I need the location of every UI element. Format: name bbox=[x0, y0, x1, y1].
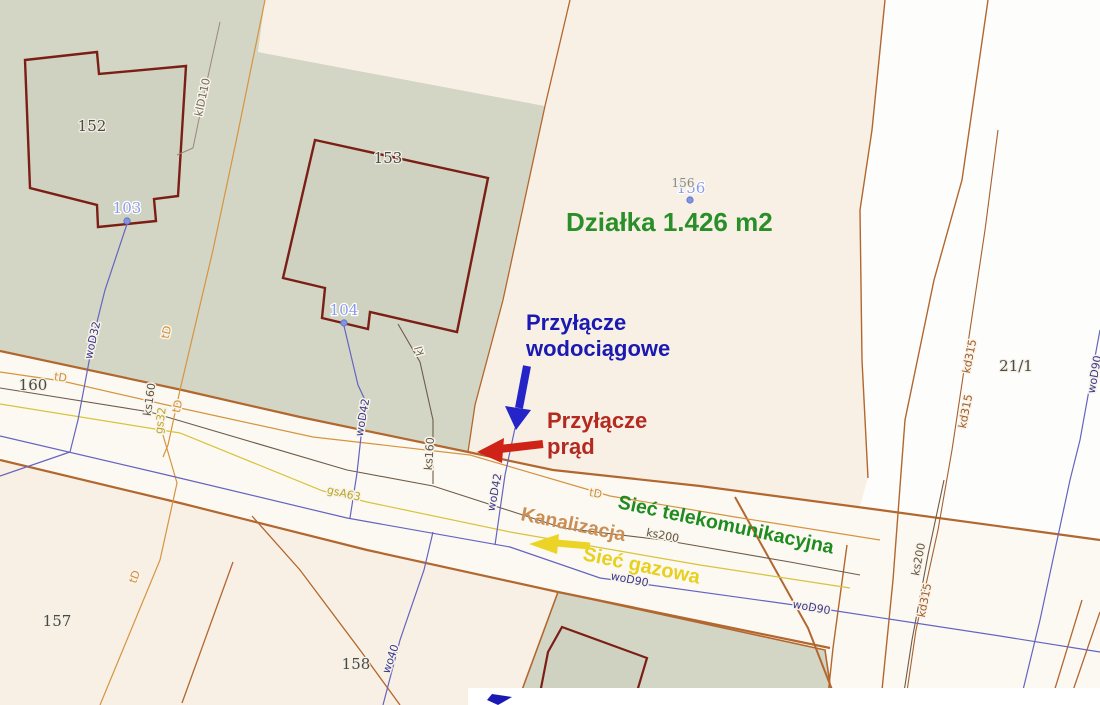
label-td-2: tD bbox=[170, 399, 185, 414]
label-td-4: tD bbox=[588, 486, 603, 501]
parcel-number-156-gray: 156 bbox=[672, 176, 695, 190]
parcel-number-157: 157 bbox=[43, 612, 72, 630]
cadastral-map: klD110 woD32 tD ks160 gs32 tD tD woD42 k… bbox=[0, 0, 1100, 705]
parcel-number-152: 152 bbox=[78, 117, 107, 135]
bottom-white-strip bbox=[468, 688, 1100, 705]
address-number-103: 103 bbox=[113, 199, 142, 217]
water-connection-label-line1: Przyłącze bbox=[526, 310, 626, 335]
parcel-number-153: 153 bbox=[374, 149, 403, 167]
address-dot-104 bbox=[341, 320, 347, 326]
water-connection-label-line2: wodociągowe bbox=[525, 336, 670, 361]
address-number-104: 104 bbox=[330, 301, 359, 319]
address-dot-156 bbox=[687, 197, 693, 203]
parcel-number-160: 160 bbox=[19, 376, 48, 394]
parcel-number-21-1: 21/1 bbox=[999, 357, 1033, 375]
label-ks160-2: ks160 bbox=[422, 437, 437, 471]
address-dot-103 bbox=[124, 218, 130, 224]
label-td-1: tD bbox=[53, 370, 68, 385]
power-connection-label-line1: Przyłącze bbox=[547, 408, 647, 433]
power-connection-label-line2: prąd bbox=[547, 434, 595, 459]
parcel-number-158: 158 bbox=[342, 655, 371, 673]
plot-area-annotation: Działka 1.426 m2 bbox=[566, 207, 773, 237]
